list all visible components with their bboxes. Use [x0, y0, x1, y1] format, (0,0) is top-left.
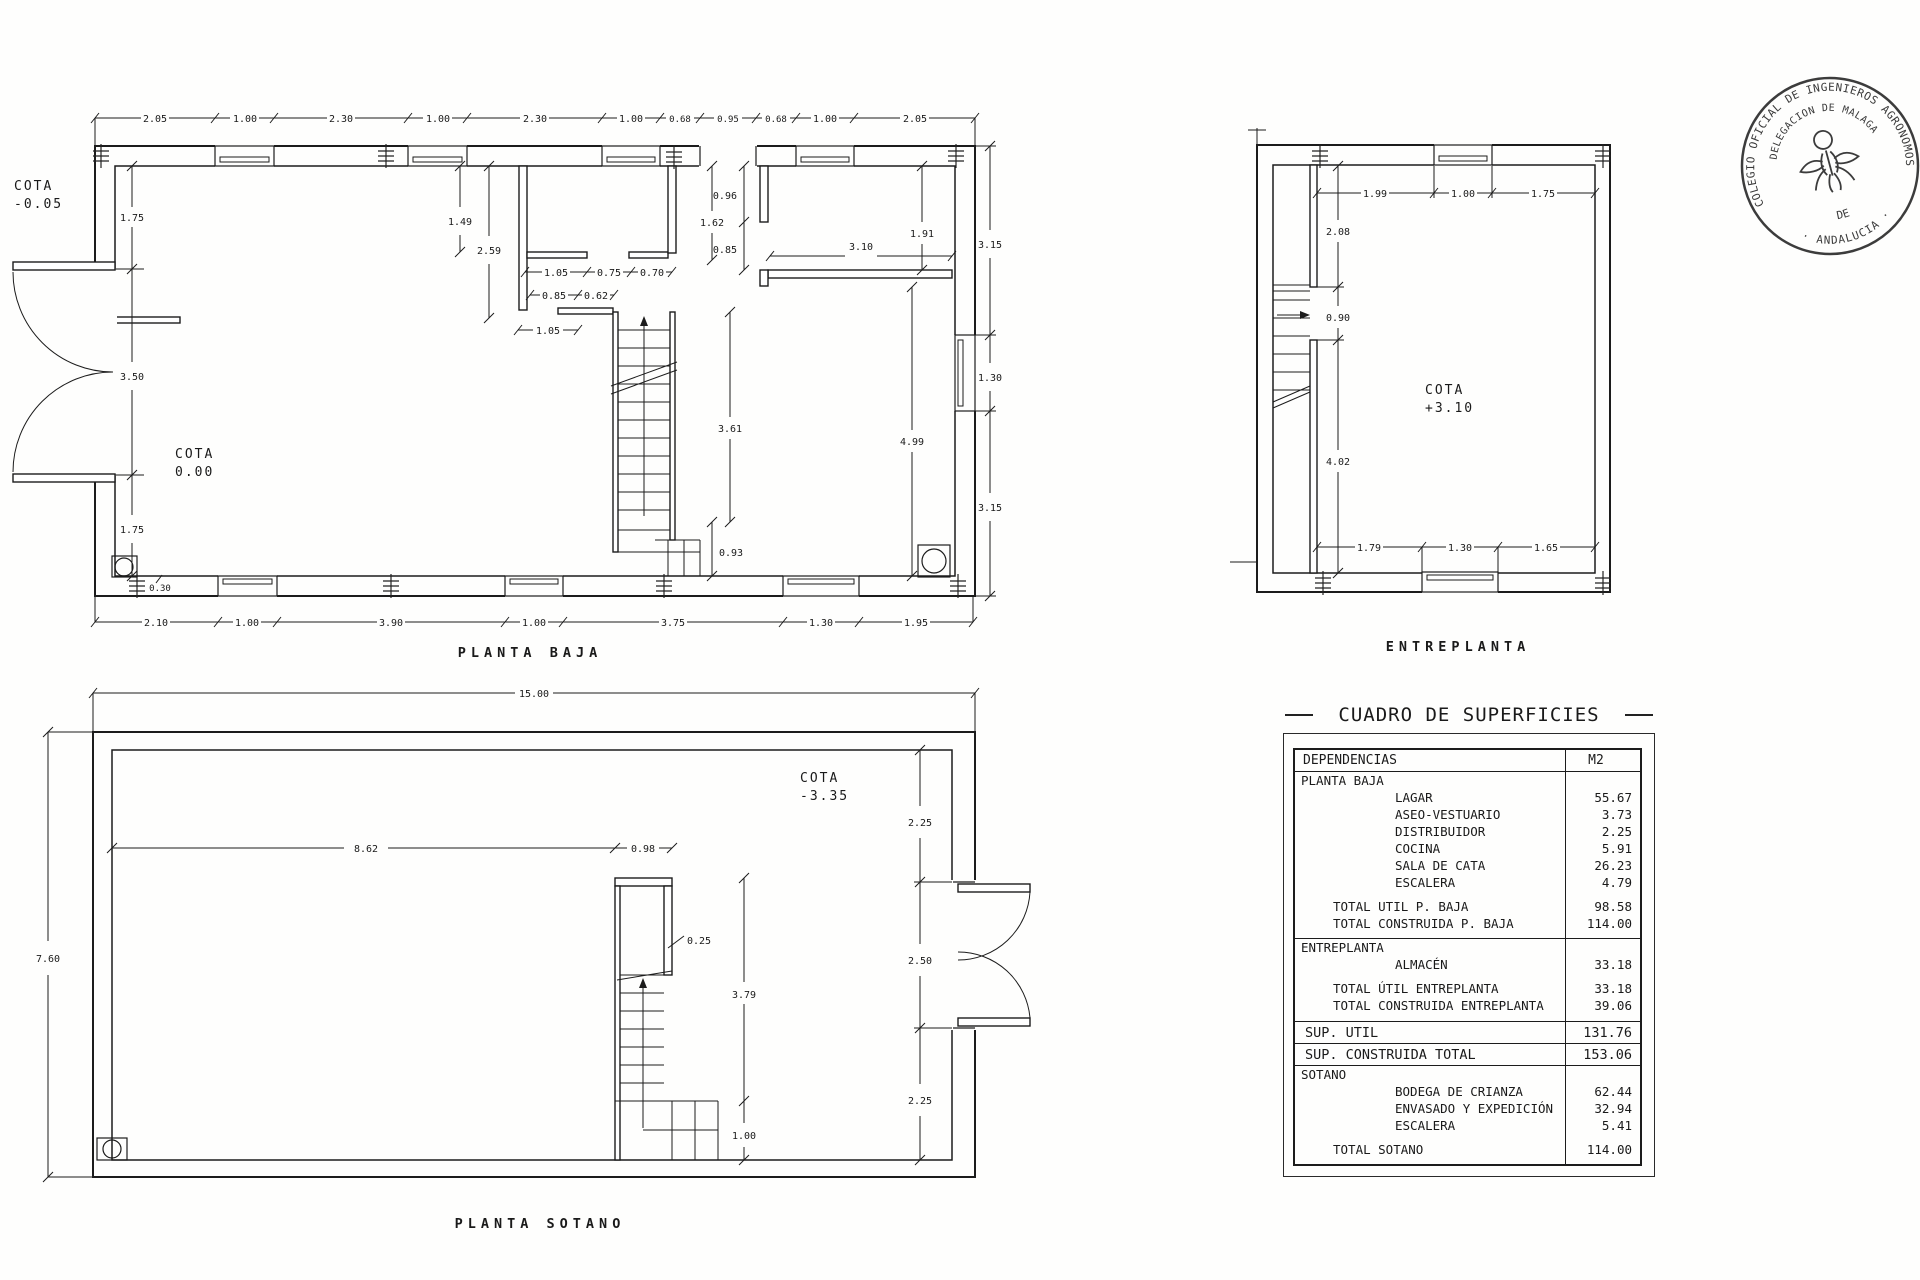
table-row: DISTRIBUIDOR2.25 — [1295, 823, 1640, 840]
dim-label: 2.30 — [523, 114, 547, 125]
surfaces-table-titlerow: CUADRO DE SUPERFICIES — [1283, 704, 1655, 726]
dim-label: 0.62 — [584, 291, 608, 302]
dim-label: 3.90 — [379, 618, 403, 629]
window — [408, 144, 467, 168]
dim-label: 1.00 — [732, 1131, 756, 1142]
openings — [951, 880, 977, 1030]
window — [602, 144, 660, 168]
table-row: BODEGA DE CRIANZA62.44 — [1295, 1083, 1640, 1100]
table-row: ENTREPLANTA — [1295, 938, 1640, 956]
column-divider — [1565, 750, 1567, 1164]
dim-label: 2.25 — [908, 1096, 932, 1107]
staircase — [1273, 285, 1310, 408]
svg-text:COLEGIO OFICIAL DE INGENIEROS: COLEGIO OFICIAL DE INGENIEROS AGRONOMOS — [1725, 61, 1919, 210]
dim-label: 1.30 — [1448, 543, 1472, 554]
dimension-lines — [1313, 161, 1599, 578]
dimension-labels: 2.05 1.00 2.30 1.00 2.30 1.00 0.68 0.95 … — [120, 114, 1002, 629]
window — [505, 574, 563, 598]
dim-label: 3.15 — [978, 240, 1002, 251]
dim-label: 0.85 — [713, 245, 737, 256]
dim-label: 2.05 — [143, 114, 167, 125]
window — [218, 574, 277, 598]
window — [953, 335, 977, 411]
dim-label: 0.98 — [631, 844, 655, 855]
plan-title: PLANTA BAJA — [458, 645, 602, 661]
table-row: TOTAL UTIL P. BAJA98.58 — [1295, 898, 1640, 915]
dim-label: 1.62 — [700, 218, 724, 229]
walls — [95, 146, 975, 596]
dim-label: 1.00 — [619, 114, 643, 125]
dim-label: 3.79 — [732, 990, 756, 1001]
window — [1422, 570, 1498, 594]
dim-label: 15.00 — [519, 689, 549, 700]
dim-label: 1.00 — [235, 618, 259, 629]
dim-label: 1.00 — [233, 114, 257, 125]
windows — [1422, 143, 1498, 594]
cota-exterior-value: -0.05 — [14, 197, 63, 212]
stamp-de-text: DE — [1835, 206, 1852, 222]
cota-interior: COTA — [175, 447, 214, 462]
dim-label: 3.15 — [978, 503, 1002, 514]
dimension-labels: 1.99 1.00 1.75 2.08 0.90 4.02 1.79 1.30 … — [1326, 189, 1558, 554]
table-row: ESCALERA5.41 — [1295, 1117, 1640, 1134]
dim-label: 0.85 — [542, 291, 566, 302]
windows — [215, 144, 977, 598]
dim-label: 1.00 — [1451, 189, 1475, 200]
table-row: ENVASADO Y EXPEDICIÓN32.94 — [1295, 1100, 1640, 1117]
window — [796, 144, 854, 168]
dim-label: 7.60 — [36, 954, 60, 965]
dim-label: 2.59 — [477, 246, 501, 257]
staircase — [615, 878, 718, 1160]
window — [215, 144, 274, 168]
header-m2: M2 — [1566, 753, 1640, 768]
planta-sotano-plan: 15.00 7.60 2.25 2.50 2.25 8.62 0.98 0.25… — [36, 688, 1030, 1232]
dim-label: 3.75 — [661, 618, 685, 629]
axis-marks — [93, 144, 966, 598]
plan-title: PLANTA SOTANO — [455, 1216, 626, 1232]
official-stamp: COLEGIO OFICIAL DE INGENIEROS AGRONOMOS … — [1722, 58, 1920, 274]
window — [1434, 143, 1492, 167]
table-row: SALA DE CATA26.23 — [1295, 857, 1640, 874]
dim-label: 1.49 — [448, 217, 472, 228]
dim-label: 2.08 — [1326, 227, 1350, 238]
planta-baja-plan: 2.05 1.00 2.30 1.00 2.30 1.00 0.68 0.95 … — [13, 113, 1002, 661]
column-circle — [115, 558, 133, 576]
dim-label: 0.68 — [765, 115, 787, 125]
dim-label: 1.95 — [904, 618, 928, 629]
dim-label: 8.62 — [354, 844, 378, 855]
dim-label: 0.68 — [669, 115, 691, 125]
dim-label: 0.90 — [1326, 313, 1350, 324]
dim-label: 4.99 — [900, 437, 924, 448]
dim-label: 0.96 — [713, 191, 737, 202]
dim-label: 1.00 — [813, 114, 837, 125]
table-row: LAGAR55.67 — [1295, 789, 1640, 806]
dim-label: 1.91 — [910, 229, 934, 240]
table-row-summary: SUP. UTIL131.76 — [1295, 1021, 1640, 1044]
dim-label: 3.10 — [849, 242, 873, 253]
stamp-outer-text: COLEGIO OFICIAL DE INGENIEROS AGRONOMOS — [1725, 61, 1919, 210]
cota-exterior: COTA — [14, 179, 53, 194]
header-dependencias: DEPENDENCIAS — [1295, 753, 1566, 768]
dim-label: 1.30 — [809, 618, 833, 629]
stair-up-arrow — [639, 978, 647, 988]
dim-label: 1.00 — [522, 618, 546, 629]
table-row: SOTANO — [1295, 1066, 1640, 1083]
surfaces-table-outer-box: DEPENDENCIAS M2 PLANTA BAJA LAGAR55.67 A… — [1283, 733, 1655, 1177]
axis-marks — [1312, 144, 1611, 595]
dim-label: 1.30 — [978, 373, 1002, 384]
column-box — [918, 545, 950, 577]
table-row-summary: SUP. CONSTRUIDA TOTAL153.06 — [1295, 1044, 1640, 1066]
title-dash-right — [1625, 714, 1653, 716]
dim-label: 2.05 — [903, 114, 927, 125]
dim-label: 4.02 — [1326, 457, 1350, 468]
cota-value: -3.35 — [800, 789, 849, 804]
surfaces-table-inner-box: DEPENDENCIAS M2 PLANTA BAJA LAGAR55.67 A… — [1293, 748, 1642, 1166]
table-row: TOTAL CONSTRUIDA ENTREPLANTA39.06 — [1295, 997, 1640, 1014]
dim-label: 0.25 — [687, 936, 711, 947]
dimension-lines — [91, 113, 996, 627]
dim-label: 1.79 — [1357, 543, 1381, 554]
entreplanta-plan: 1.99 1.00 1.75 2.08 0.90 4.02 1.79 1.30 … — [1230, 128, 1611, 655]
table-row: ASEO-VESTUARIO3.73 — [1295, 806, 1640, 823]
dim-label: 2.10 — [144, 618, 168, 629]
dim-label: 1.99 — [1363, 189, 1387, 200]
dim-label: 0.95 — [717, 115, 739, 125]
dim-label: 2.25 — [908, 818, 932, 829]
table-row: COCINA5.91 — [1295, 840, 1640, 857]
dim-label: 0.30 — [149, 584, 171, 594]
openings — [92, 144, 757, 476]
dim-label: 1.05 — [536, 326, 560, 337]
table-row: TOTAL ÚTIL ENTREPLANTA33.18 — [1295, 980, 1640, 997]
dim-label: 0.70 — [640, 268, 664, 279]
fixtures — [112, 545, 950, 577]
dim-label: 0.75 — [597, 268, 621, 279]
cota: COTA — [800, 771, 839, 786]
plan-title: ENTREPLANTA — [1386, 639, 1530, 655]
dim-label: 1.65 — [1534, 543, 1558, 554]
cota-interior-value: 0.00 — [175, 465, 214, 480]
stamp-emblem — [1792, 123, 1866, 198]
dim-label: 1.05 — [544, 268, 568, 279]
table-row: ALMACÉN33.18 — [1295, 956, 1640, 973]
surfaces-table: CUADRO DE SUPERFICIES DEPENDENCIAS M2 PL… — [1283, 704, 1655, 1177]
table-row: ESCALERA4.79 — [1295, 874, 1640, 891]
dim-label: 1.75 — [120, 213, 144, 224]
window — [783, 574, 859, 598]
stair-up-arrow — [640, 316, 648, 326]
plan-annotations: COTA +3.10 ENTREPLANTA — [1386, 383, 1530, 655]
cota-value: +3.10 — [1425, 401, 1474, 416]
drawing-sheet: 2.05 1.00 2.30 1.00 2.30 1.00 0.68 0.95 … — [0, 0, 1920, 1280]
dim-label: 1.00 — [426, 114, 450, 125]
dim-label: 3.61 — [718, 424, 742, 435]
svg-text:DE: DE — [1835, 206, 1852, 222]
dimension-labels: 15.00 7.60 2.25 2.50 2.25 8.62 0.98 0.25… — [36, 689, 932, 1142]
dimension-lines — [43, 688, 979, 1182]
dim-label: 1.75 — [1531, 189, 1555, 200]
table-row: PLANTA BAJA — [1295, 772, 1640, 789]
staircase — [611, 312, 700, 576]
column-circle — [922, 549, 946, 573]
table-header-row: DEPENDENCIAS M2 — [1295, 750, 1640, 772]
dim-label: 2.30 — [329, 114, 353, 125]
table-row: TOTAL CONSTRUIDA P. BAJA114.00 — [1295, 915, 1640, 932]
dim-label: 0.93 — [719, 548, 743, 559]
dim-label: 1.75 — [120, 525, 144, 536]
dim-label: 3.50 — [120, 372, 144, 383]
title-dash-left — [1285, 714, 1313, 716]
cota: COTA — [1425, 383, 1464, 398]
dim-label: 2.50 — [908, 956, 932, 967]
table-row: TOTAL SOTANO114.00 — [1295, 1141, 1640, 1158]
plan-annotations: COTA -3.35 PLANTA SOTANO — [455, 771, 849, 1232]
surfaces-table-title: CUADRO DE SUPERFICIES — [1338, 704, 1599, 726]
